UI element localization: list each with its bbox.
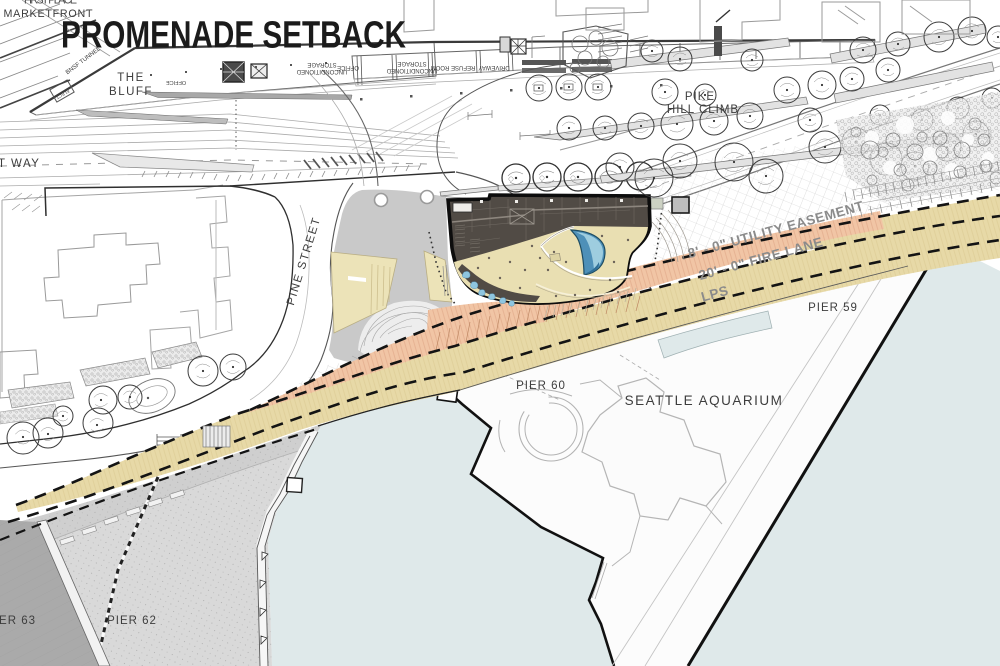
svg-text:PIER 60: PIER 60 <box>516 380 566 392</box>
svg-text:HILL CLIMB: HILL CLIMB <box>667 104 739 116</box>
svg-text:THE: THE <box>117 72 145 84</box>
svg-text:SEATTLE AQUARIUM: SEATTLE AQUARIUM <box>625 393 784 408</box>
svg-text:PIKE: PIKE <box>685 91 715 103</box>
svg-text:BLUFF: BLUFF <box>109 86 153 98</box>
svg-text:OFFICE: OFFICE <box>166 79 186 85</box>
svg-text:STORAGE: STORAGE <box>397 60 426 66</box>
svg-text:OFFICE: OFFICE <box>337 64 359 70</box>
svg-text:UNCONDITIONED: UNCONDITIONED <box>386 67 437 73</box>
svg-text:FIRST PLACE: FIRST PLACE <box>24 0 77 7</box>
svg-text:ER 63: ER 63 <box>0 615 36 627</box>
svg-text:PIER 62: PIER 62 <box>107 615 157 627</box>
svg-text:STORAGE: STORAGE <box>307 61 336 67</box>
svg-text:REFUSE ROOM: REFUSE ROOM <box>431 64 476 70</box>
svg-text:PIER 59: PIER 59 <box>808 302 858 314</box>
svg-text:PROMENADE SETBACK: PROMENADE SETBACK <box>61 15 406 57</box>
svg-text:DRIVEWAY: DRIVEWAY <box>478 64 509 70</box>
svg-text:T WAY: T WAY <box>0 158 40 170</box>
